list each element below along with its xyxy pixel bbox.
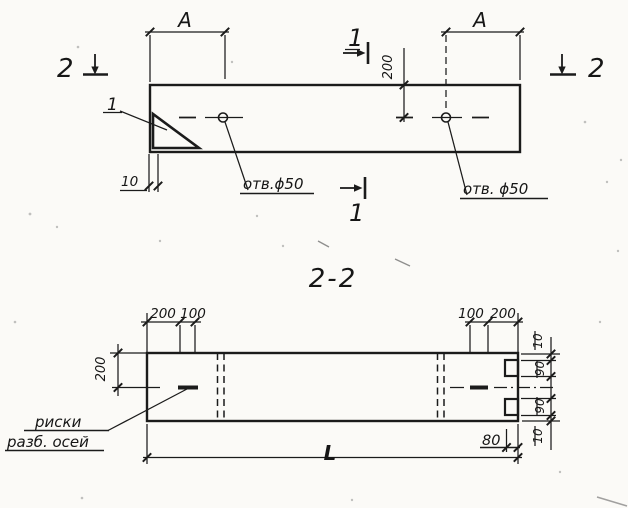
section-marker-1-top: 1 <box>343 24 368 64</box>
dim-a-left: A <box>145 8 229 82</box>
section-hole-right-dashed <box>438 353 445 421</box>
dim-right-10-top: 10 <box>531 333 545 349</box>
dim-a-right: A <box>441 8 524 110</box>
dim-a-left-label: A <box>176 8 192 32</box>
section-view: 2-2 риски разб. осей <box>5 264 560 465</box>
dim-l-label: L <box>324 441 337 465</box>
marker-2-right-label: 2 <box>588 54 605 84</box>
hole-callout-left: отв.ϕ50 <box>225 122 314 194</box>
hole-callout-right: отв. ϕ50 <box>448 122 548 199</box>
dim-right-10-bottom: 10 <box>531 428 545 444</box>
detail-callout-1: 1 <box>103 95 167 130</box>
plan-hole-left <box>179 113 243 122</box>
end-notch-top <box>505 360 518 376</box>
axis-note-line2: разб. осей <box>6 433 89 451</box>
dim-chain-top-right: 100 200 <box>458 306 523 352</box>
dim-chain-top-left: 200 100 <box>141 306 206 352</box>
plan-view: отв.ϕ50 отв. ϕ50 1 A <box>57 8 605 227</box>
axis-note-line1: риски <box>34 413 82 431</box>
plan-corner-triangle <box>153 114 199 148</box>
section-marker-1-bottom: 1 <box>340 177 365 227</box>
dim-top-right-100: 100 <box>458 306 484 322</box>
hole-label-left: отв.ϕ50 <box>243 175 304 193</box>
marker-2-left-label: 2 <box>57 54 74 84</box>
dim-chain-right: 10 90 90 10 <box>521 331 560 450</box>
dim-200-section: 200 <box>94 344 147 396</box>
section-title: 2-2 <box>309 264 357 294</box>
dim-length-l: L <box>143 424 522 465</box>
dim-10-plan: 10 <box>120 154 162 192</box>
dim-top-left-200: 200 <box>150 306 176 322</box>
plan-hole-right <box>396 113 489 122</box>
dim-right-90-top: 90 <box>533 361 547 377</box>
plan-beam-outline <box>150 85 520 152</box>
arrow-right-icon <box>354 184 363 191</box>
dim-80-label: 80 <box>482 433 500 449</box>
dim-10-label: 10 <box>121 174 138 190</box>
dim-top-left-100: 100 <box>180 306 206 322</box>
dim-a-right-label: A <box>471 8 487 32</box>
dim-top-right-200: 200 <box>490 306 516 322</box>
dim-200-section-label: 200 <box>94 357 109 382</box>
section-marker-2-left: 2 <box>57 54 108 84</box>
dim-200-plan-label: 200 <box>381 55 396 80</box>
drawing-canvas: отв.ϕ50 отв. ϕ50 1 A <box>0 0 628 508</box>
technical-drawing: отв.ϕ50 отв. ϕ50 1 A <box>0 0 628 508</box>
hole-label-right: отв. ϕ50 <box>463 180 528 198</box>
marker-1-top-label: 1 <box>348 24 363 52</box>
section-hole-left-dashed <box>218 353 225 421</box>
dim-80: 80 <box>480 429 522 452</box>
section-marker-2-right: 2 <box>550 54 605 84</box>
marker-1-bottom-label: 1 <box>349 199 364 227</box>
dim-right-90-bottom: 90 <box>533 398 547 414</box>
end-notch-bottom <box>505 399 518 415</box>
